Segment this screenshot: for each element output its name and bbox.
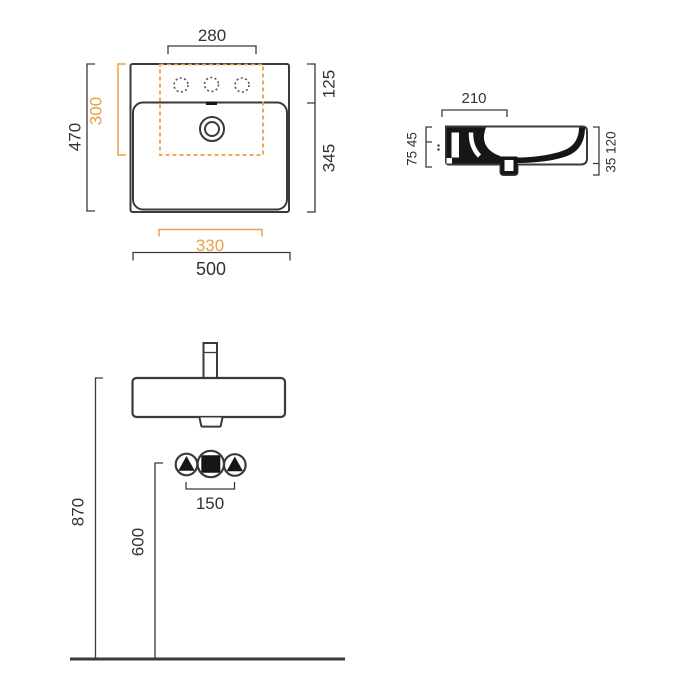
dim-label-210: 210: [461, 90, 486, 107]
dim-label-345: 345: [319, 144, 338, 172]
section-view: 210 75 45 35 120: [405, 90, 619, 175]
front-basin-body: [133, 378, 286, 417]
dim-bracket-280: [168, 46, 256, 54]
technical-drawing-canvas: 280 470 300 125 345 330 500 210 75 45: [0, 0, 700, 700]
dim-label-150: 150: [196, 494, 224, 513]
dim-bracket-150: [186, 482, 235, 489]
dim-bracket-35-120: [593, 127, 599, 175]
dim-line-600: [155, 463, 163, 659]
tap-icon: [204, 343, 218, 378]
dim-bracket-75-45: [426, 127, 432, 167]
dim-label-300: 300: [86, 97, 105, 125]
dim-label-870: 870: [68, 498, 87, 526]
section-bottom-notch: [447, 158, 453, 164]
fixing-mark-icon: [438, 145, 440, 147]
dim-label-600: 600: [128, 528, 147, 556]
overflow-slot-icon: [206, 102, 217, 106]
section-drain-opening: [505, 160, 514, 171]
dim-label-35-120: 35 120: [604, 131, 619, 172]
dim-label-125: 125: [319, 70, 338, 98]
plan-view: 280 470 300 125 345 330 500: [65, 26, 338, 279]
dim-label-470: 470: [65, 123, 84, 151]
dim-label-280: 280: [198, 26, 226, 45]
front-view: 150 870 600: [68, 343, 345, 659]
front-drain-trap: [200, 418, 223, 427]
dim-line-870: [96, 378, 104, 659]
dim-label-75-45: 75 45: [405, 132, 420, 166]
drain-hole-inner: [205, 122, 219, 136]
dim-bracket-125-345: [307, 64, 315, 212]
waste-outlet-square: [201, 455, 220, 473]
dim-bracket-470: [87, 64, 95, 211]
dim-bracket-300: [118, 64, 126, 155]
fixing-mark-icon: [438, 149, 440, 151]
dim-label-500: 500: [196, 259, 226, 279]
section-tap-channel: [452, 133, 460, 158]
dim-bracket-210: [442, 110, 507, 117]
